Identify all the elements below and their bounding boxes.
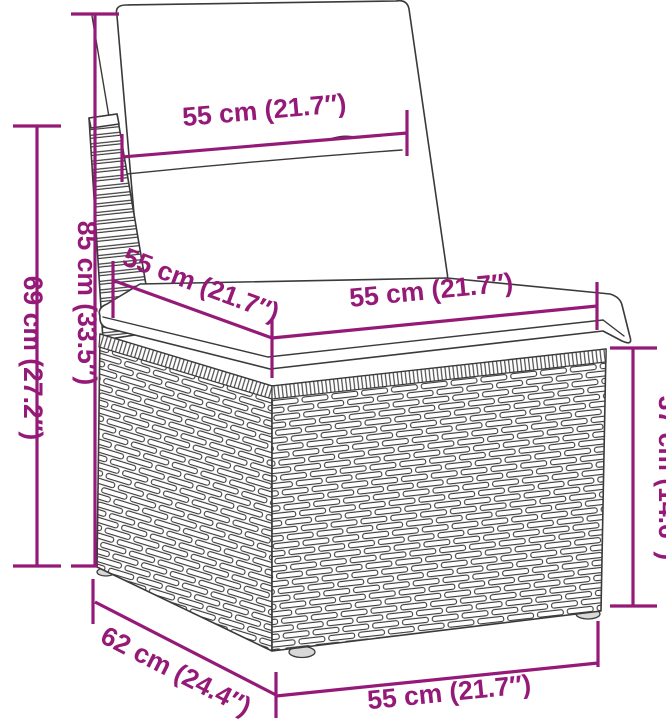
dim-base-height: 37 cm (14.6″) — [610, 348, 666, 606]
dim-frame-height-label: 69 cm (27.2″) — [18, 276, 48, 440]
sofa-illustration: 55 cm (21.7″) 85 cm (33.5″) 69 cm (27.2″… — [0, 0, 666, 720]
dim-frame-height: 69 cm (27.2″) — [13, 126, 61, 566]
dim-base-height-label: 37 cm (14.6″) — [653, 396, 666, 560]
dim-base-width-label: 55 cm (21.7″) — [366, 669, 533, 715]
product-dimension-diagram: 55 cm (21.7″) 85 cm (33.5″) 69 cm (27.2″… — [0, 0, 666, 720]
dim-total-height-label: 85 cm (33.5″) — [72, 221, 102, 385]
back-cushion — [116, 1, 447, 294]
dim-base-depth-label: 62 cm (24.4″) — [96, 620, 256, 720]
base-box — [97, 334, 606, 651]
base-front-face — [272, 349, 606, 651]
